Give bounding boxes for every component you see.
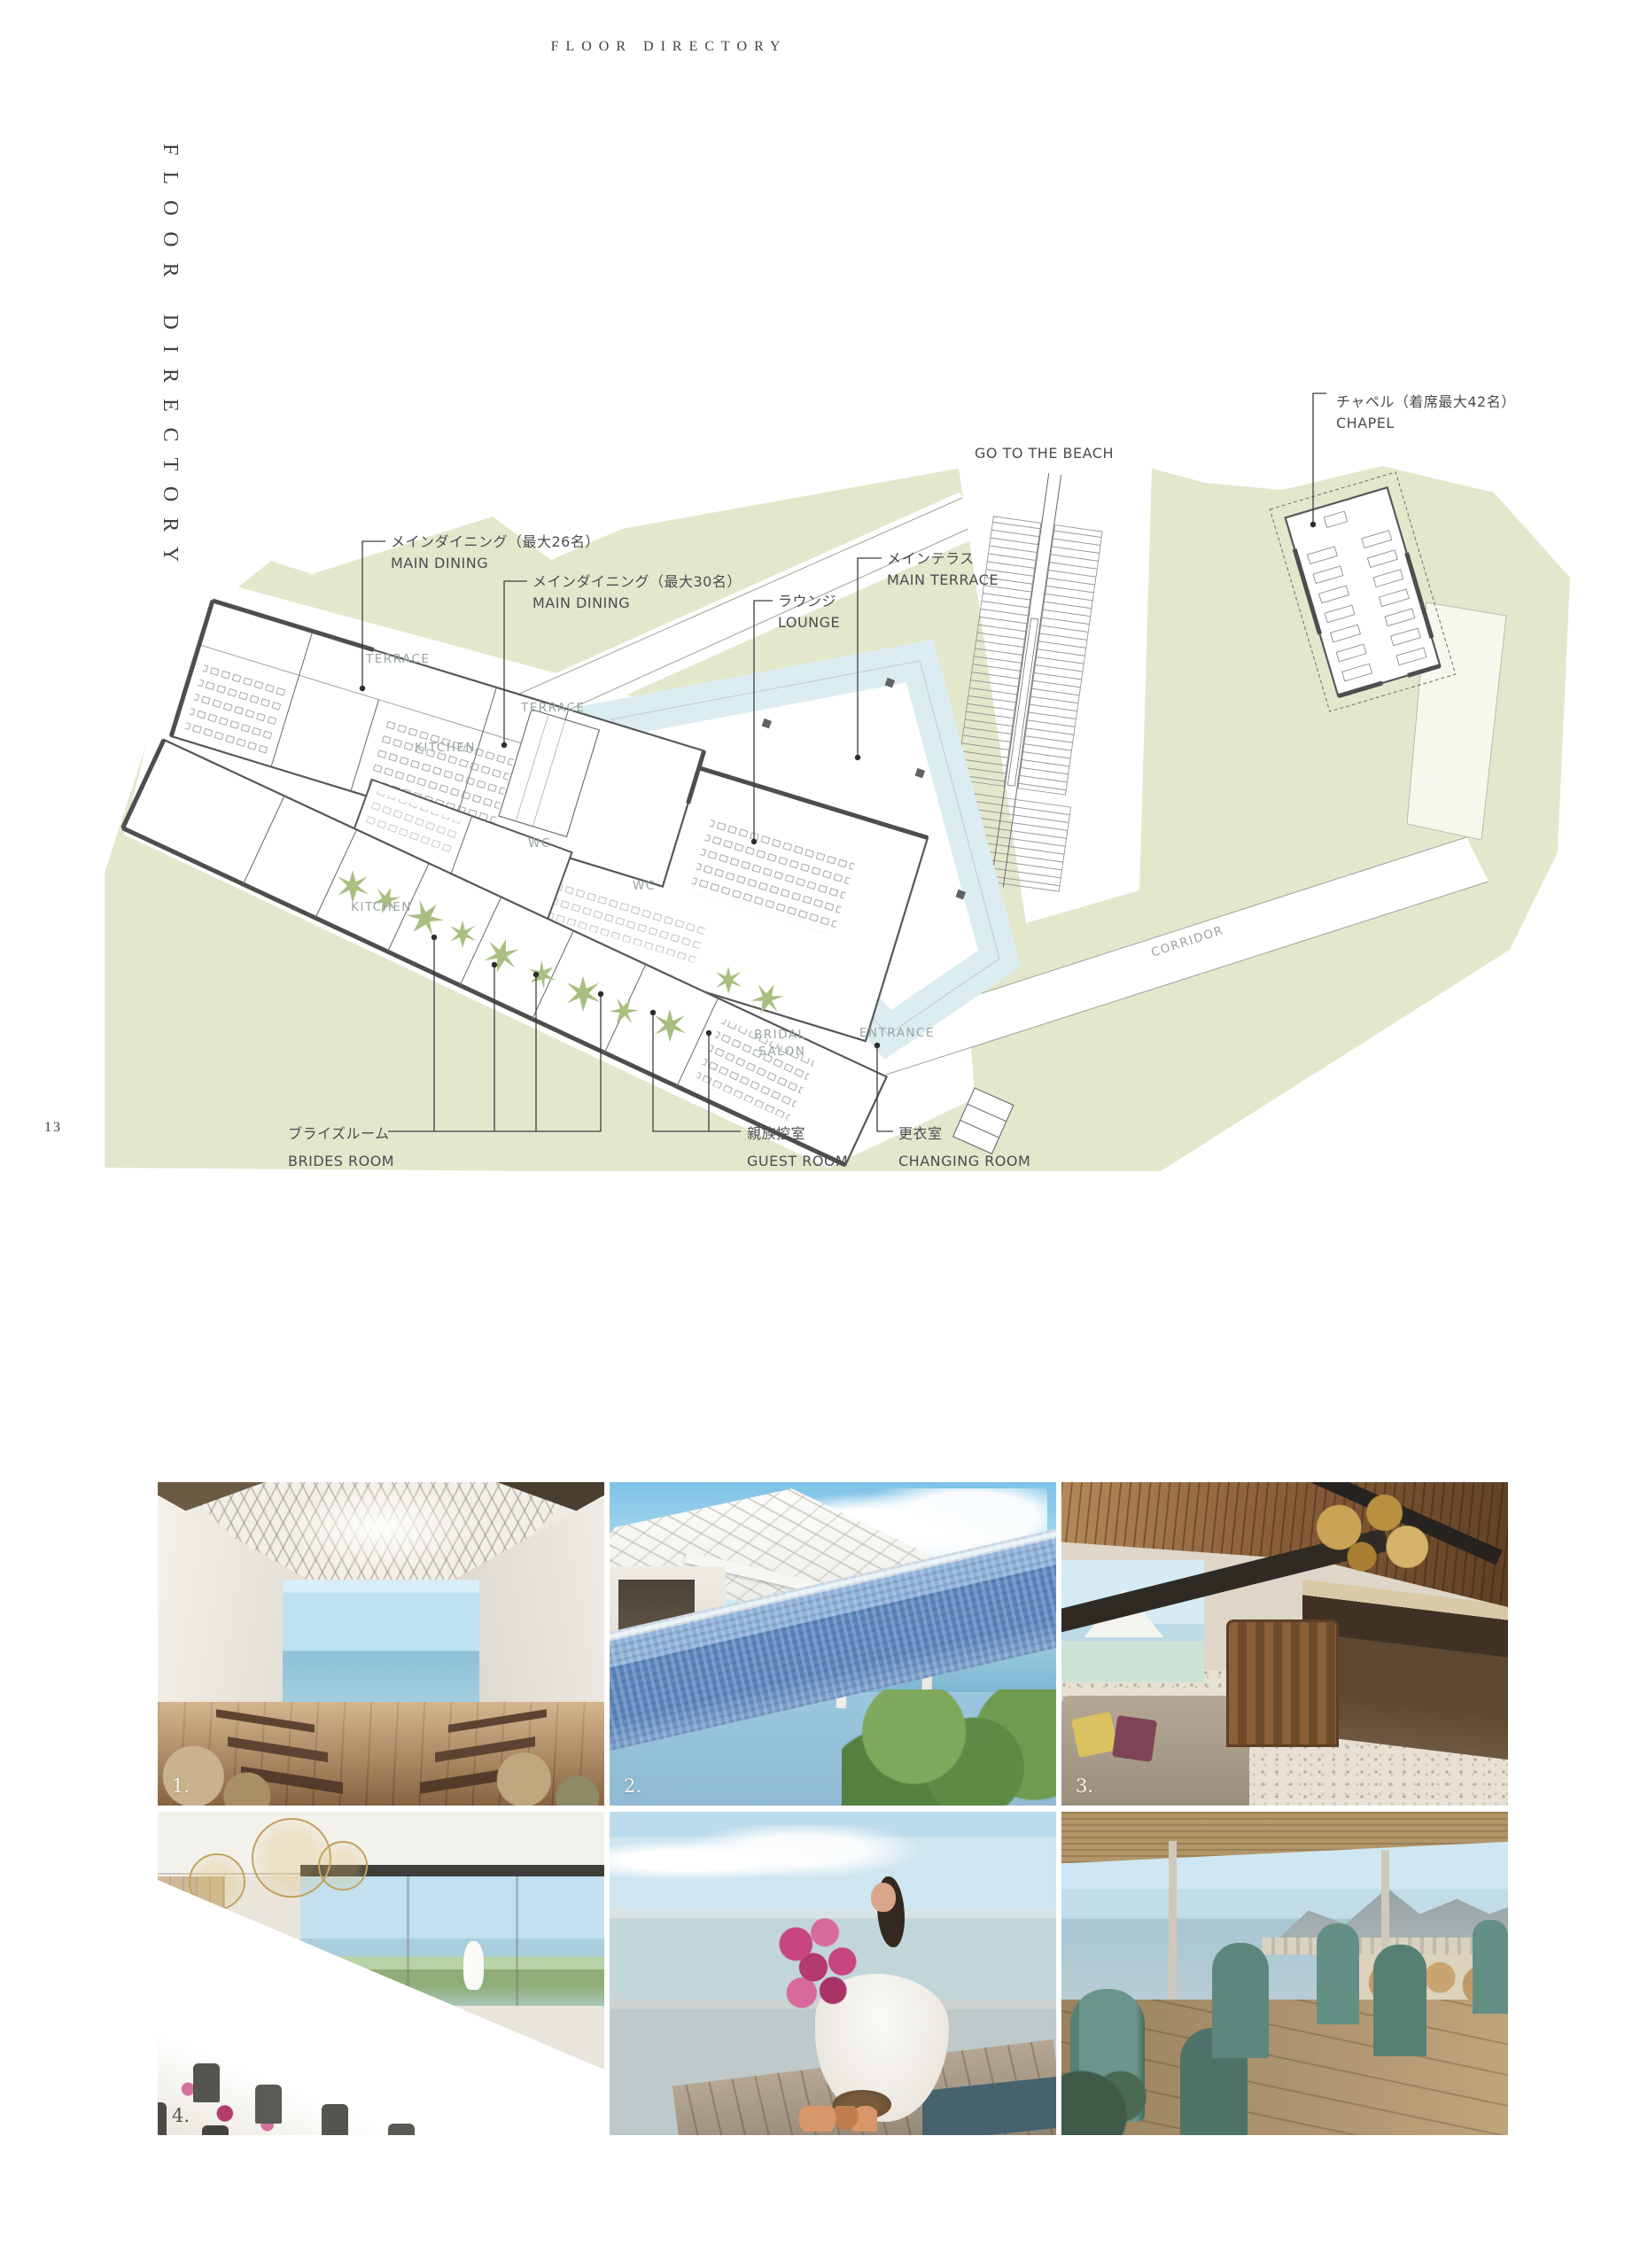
brides-room-label-jp: ブライズルーム bbox=[288, 1125, 390, 1142]
gold-flower-decor bbox=[1294, 1488, 1445, 1586]
photo-number: 2. bbox=[624, 1775, 641, 1797]
photo-pool-terrace: 2. bbox=[610, 1482, 1056, 1806]
main-dining-26-label-en: MAIN DINING bbox=[391, 555, 488, 571]
entrance-label: ENTRANCE bbox=[859, 1026, 935, 1040]
chairs bbox=[158, 2102, 167, 2135]
photo-grid: 1. 2. 3. bbox=[158, 1482, 1508, 2141]
lounge-label-jp: ラウンジ bbox=[778, 593, 836, 610]
bride-face bbox=[871, 1883, 896, 1912]
outdoor-deck bbox=[1338, 1954, 1508, 2006]
photo-number: 1. bbox=[172, 1775, 190, 1797]
photo-bride-on-deck bbox=[610, 1812, 1056, 2135]
lounge-label-en: LOUNGE bbox=[778, 614, 840, 631]
guest-room-label-en: GUEST ROOM bbox=[747, 1153, 848, 1169]
attendant-figure bbox=[463, 1941, 484, 1990]
changing-room-label-en: CHANGING ROOM bbox=[898, 1153, 1030, 1169]
changing-room-label-jp: 更衣室 bbox=[898, 1125, 943, 1142]
photo-number: 4. bbox=[172, 2105, 190, 2126]
photo-row-1: 1. 2. 3. bbox=[158, 1482, 1508, 1806]
terrace1-label: TERRACE bbox=[365, 652, 430, 666]
main-dining-30-label-en: MAIN DINING bbox=[532, 594, 630, 611]
kitchen1-label: KITCHEN bbox=[415, 741, 476, 755]
photo-party-room: 4. bbox=[158, 1812, 604, 2135]
pillow bbox=[1112, 1716, 1158, 1763]
main-terrace-label-jp: メインテラス bbox=[887, 550, 975, 567]
pendant-lamp bbox=[318, 1841, 368, 1891]
photo-lounge-bar: 3. bbox=[1061, 1482, 1508, 1806]
wc1-label: WC bbox=[633, 879, 656, 893]
chapel-label-en: CHAPEL bbox=[1336, 415, 1395, 431]
ocean-window bbox=[283, 1580, 479, 1709]
photo-ocean-view-restaurant bbox=[1061, 1812, 1508, 2135]
go-to-the-beach-label: GO TO THE BEACH bbox=[975, 445, 1114, 462]
wc2-label: WC bbox=[528, 836, 551, 850]
beach-items bbox=[797, 2106, 878, 2132]
bougainvillea-bouquet bbox=[761, 1909, 877, 2025]
kitchen2-label: KITCHEN bbox=[351, 900, 412, 914]
floor-plan: CORRIDOR bbox=[0, 0, 1648, 1285]
skylight-glow bbox=[283, 1482, 479, 1573]
guest-room-label-jp: 親族控室 bbox=[747, 1125, 805, 1142]
terrace2-label: TERRACE bbox=[520, 701, 585, 715]
main-terrace-label-en: MAIN TERRACE bbox=[887, 571, 999, 588]
greenery bbox=[842, 1689, 1056, 1806]
plant-leaf bbox=[1061, 2039, 1160, 2136]
main-dining-30-label-jp: メインダイニング（最大30名） bbox=[532, 573, 742, 590]
wood-slat-chair bbox=[1226, 1619, 1339, 1748]
photo-row-2: 4. bbox=[158, 1812, 1508, 2135]
bridal-salon-label-2: SALON bbox=[758, 1045, 805, 1059]
dried-flowers bbox=[158, 1741, 604, 1806]
bridal-salon-label-1: BRIDAL bbox=[754, 1028, 806, 1042]
seaside-town bbox=[1263, 1938, 1508, 1953]
main-dining-26-label-jp: メインダイニング（最大26名） bbox=[391, 533, 600, 550]
photo-chapel-interior: 1. bbox=[158, 1482, 604, 1806]
photo-number: 3. bbox=[1076, 1775, 1093, 1797]
brides-room-label-en: BRIDES ROOM bbox=[288, 1153, 394, 1169]
chapel-label-jp: チャペル（着席最大42名） bbox=[1336, 393, 1516, 410]
pillow bbox=[1071, 1712, 1118, 1758]
window-mullions bbox=[1169, 1841, 1177, 2016]
